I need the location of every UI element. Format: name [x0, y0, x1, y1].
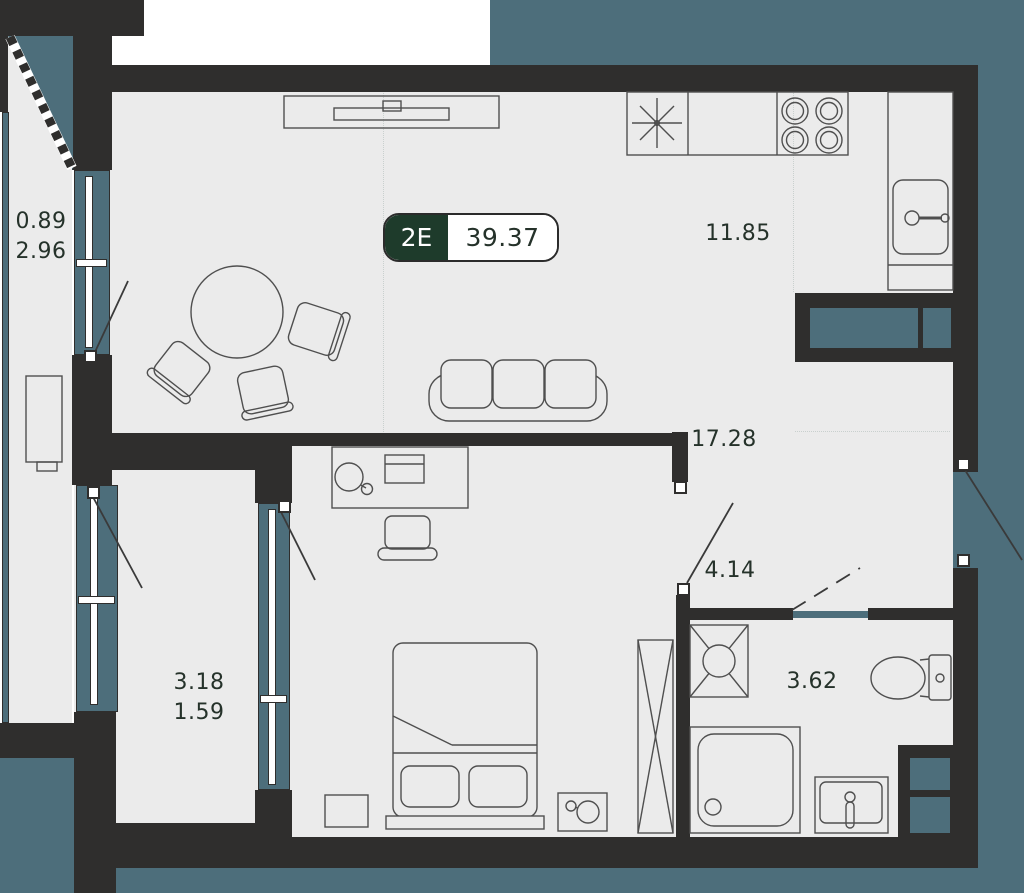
duct-window [910, 758, 950, 790]
balcony-top-label: 0.89 2.96 [16, 207, 67, 267]
shaft-window [810, 308, 918, 348]
wall-segment [74, 433, 292, 470]
apartment-area-value: 39.37 [448, 215, 557, 260]
door-hinge [278, 500, 291, 513]
exterior-zone-right [978, 0, 1024, 893]
wall-segment [88, 65, 955, 92]
wall-segment [72, 36, 112, 170]
zone-divider [793, 93, 794, 292]
wall-segment [953, 65, 978, 472]
zone-divider [383, 93, 384, 432]
door-hinge [957, 554, 970, 567]
wall-segment [0, 0, 144, 36]
zone-divider [795, 431, 950, 432]
apartment-badge: 2E 39.37 [383, 213, 559, 262]
door-hinge [84, 350, 97, 363]
wall-segment [255, 470, 292, 503]
door-hinge [87, 486, 100, 499]
balcony-bottom-label: 3.18 1.59 [174, 668, 225, 728]
wall-segment [676, 595, 690, 838]
wall-segment [0, 36, 8, 112]
floor-plan: 0.89 2.96 11.85 17.28 4.14 3.62 3.18 1.5… [0, 0, 1024, 893]
wall-segment [690, 608, 793, 620]
wall-segment [0, 723, 74, 758]
duct-window [910, 797, 950, 833]
wall-segment [255, 790, 292, 823]
living-area-label: 17.28 [691, 425, 756, 455]
exterior-zone-bottom [112, 868, 1024, 893]
door-hinge [677, 583, 690, 596]
wall-segment [868, 608, 953, 620]
balcony-bottom-area-full: 3.18 [174, 668, 225, 698]
exterior-zone-top [490, 0, 1024, 65]
wall-segment [74, 712, 116, 893]
wall-segment [953, 568, 978, 868]
door-hinge [957, 458, 970, 471]
window-frame [268, 509, 276, 785]
wall-segment [292, 433, 676, 446]
shaft-window [923, 308, 951, 348]
door-jamb [672, 432, 688, 482]
window-transom [76, 259, 107, 267]
wall-segment [112, 823, 292, 868]
balcony-top-area-full: 2.96 [16, 237, 67, 267]
exterior-zone-bottom-left [0, 758, 76, 893]
window-transom [78, 596, 115, 604]
hallway-area-label: 4.14 [705, 556, 756, 586]
bathroom-door-threshold [793, 611, 868, 618]
window-transom [260, 695, 287, 703]
balcony-top-area-reduced: 0.89 [16, 207, 67, 237]
balcony-top-floor [8, 36, 72, 723]
wall-segment [292, 837, 978, 868]
balcony-bottom-area-reduced: 1.59 [174, 698, 225, 728]
door-hinge [674, 481, 687, 494]
kitchen-area-label: 11.85 [705, 219, 770, 249]
apartment-type-badge: 2E [385, 215, 448, 260]
balcony-side-glazing [2, 112, 9, 723]
bathroom-area-label: 3.62 [787, 667, 838, 697]
